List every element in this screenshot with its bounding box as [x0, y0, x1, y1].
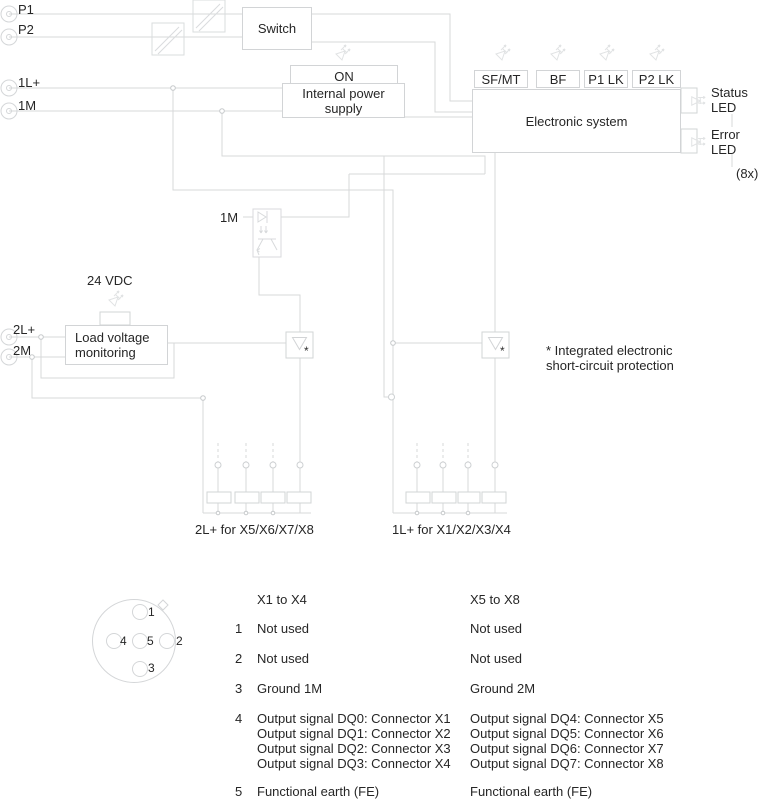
- table-row3-x1x4: Ground 1M: [257, 681, 322, 696]
- table-row2-x5x8: Not used: [470, 651, 522, 666]
- p1-lk-label: P1 LK: [588, 72, 623, 87]
- bf-led-icon: [551, 45, 565, 60]
- table-row4-x1x4: Output signal DQ0: Connector X1 Output s…: [257, 711, 451, 771]
- optocoupler-icon: [253, 209, 281, 257]
- pinout-pin-2: 2: [176, 634, 183, 649]
- table-row4-pin: 4: [235, 711, 242, 726]
- count-8x-label: (8x): [736, 166, 758, 181]
- pinout-pin-3: 3: [148, 661, 155, 676]
- 24vdc-led-icon: [109, 291, 123, 306]
- terminal-block: [207, 492, 506, 503]
- terminal-label-2lplus: 2L+: [13, 322, 35, 337]
- table-row1-pin: 1: [235, 621, 242, 636]
- electronic-system-box: Electronic system: [472, 89, 681, 153]
- terminal-label-1m: 1M: [18, 98, 36, 113]
- terminal-label-p1: P1: [18, 2, 34, 17]
- table-col2-header: X5 to X8: [470, 592, 520, 607]
- bf-label: BF: [550, 72, 567, 87]
- p2-lk-label: P2 LK: [639, 72, 674, 87]
- on-led-icon: [336, 45, 350, 60]
- status-led-label: Status LED: [711, 85, 748, 115]
- 24vdc-label: 24 VDC: [87, 273, 133, 288]
- switch-box: Switch: [242, 7, 312, 50]
- sf-mt-led-icon: [496, 45, 510, 60]
- table-row5-x1x4: Functional earth (FE): [257, 784, 379, 799]
- table-row3-x5x8: Ground 2M: [470, 681, 535, 696]
- error-led-label: Error LED: [711, 127, 740, 157]
- electronic-system-label: Electronic system: [526, 114, 628, 129]
- pinout-pin-5: 5: [147, 634, 154, 649]
- table-row3-pin: 3: [235, 681, 242, 696]
- table-row1-x5x8: Not used: [470, 621, 522, 636]
- table-row1-x1x4: Not used: [257, 621, 309, 636]
- internal-power-supply-box: Internal power supply: [282, 83, 405, 118]
- opto-1m-label: 1M: [220, 210, 238, 225]
- bus-label-left: 2L+ for X5/X6/X7/X8: [195, 522, 314, 537]
- sf-mt-box: SF/MT: [474, 70, 528, 88]
- bus-label-right: 1L+ for X1/X2/X3/X4: [392, 522, 511, 537]
- pinout-pin-1: 1: [148, 605, 155, 620]
- output-driver-icon: [286, 332, 509, 358]
- terminal-contact-icons: [1, 6, 17, 365]
- sf-mt-label: SF/MT: [482, 72, 521, 87]
- table-row2-x1x4: Not used: [257, 651, 309, 666]
- switch-label: Switch: [258, 21, 296, 36]
- right-driver-asterisk: *: [500, 344, 505, 358]
- internal-power-supply-label: Internal power supply: [302, 86, 384, 116]
- load-voltage-monitoring-box: Load voltage monitoring: [65, 325, 168, 365]
- p1-lk-led-icon: [600, 45, 614, 60]
- on-label: ON: [334, 69, 354, 84]
- terminal-label-p2: P2: [18, 22, 34, 37]
- terminal-label-2m: 2M: [13, 343, 31, 358]
- connector-pinout-icon: [93, 600, 176, 683]
- p2-lk-led-icon: [650, 45, 664, 60]
- terminal-label-1lplus: 1L+: [18, 75, 40, 90]
- p1-lk-box: P1 LK: [584, 70, 628, 88]
- table-row2-pin: 2: [235, 651, 242, 666]
- table-row5-pin: 5: [235, 784, 242, 799]
- table-row4-x5x8: Output signal DQ4: Connector X5 Output s…: [470, 711, 664, 771]
- load-voltage-monitoring-label: Load voltage monitoring: [75, 330, 149, 360]
- table-row5-x5x8: Functional earth (FE): [470, 784, 592, 799]
- p2-lk-box: P2 LK: [632, 70, 681, 88]
- transformer-icon: [152, 0, 225, 55]
- pinout-pin-4: 4: [120, 634, 127, 649]
- bf-box: BF: [536, 70, 580, 88]
- left-driver-asterisk: *: [304, 344, 309, 358]
- table-col1-header: X1 to X4: [257, 592, 307, 607]
- short-circuit-footnote: * Integrated electronic short-circuit pr…: [546, 343, 674, 373]
- wiring-diagram: Switch ON Internal power supply SF/MT BF…: [0, 0, 762, 800]
